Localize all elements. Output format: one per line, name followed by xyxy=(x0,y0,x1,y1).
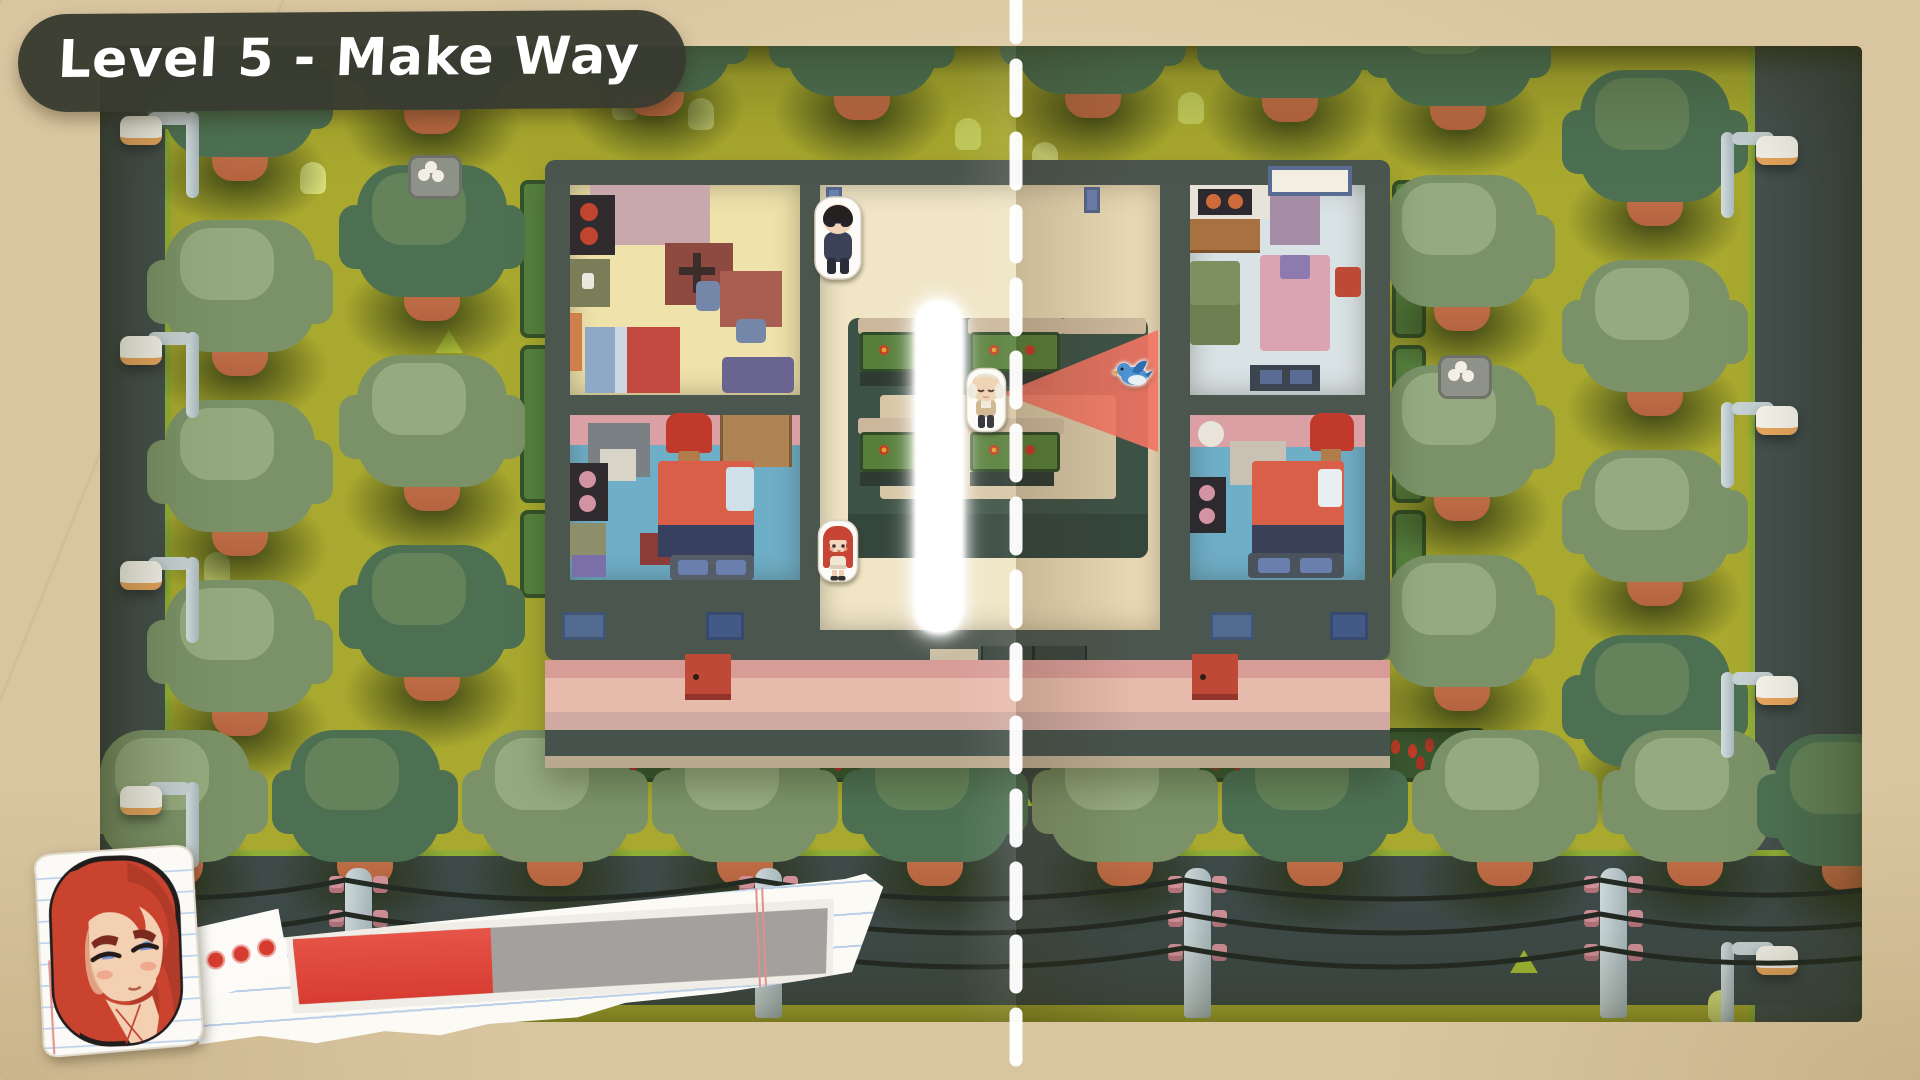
insulator xyxy=(1212,944,1227,961)
room-bottom-right xyxy=(1190,415,1365,580)
fold-highlight xyxy=(956,46,1016,1022)
npc-boy-glasses[interactable] xyxy=(812,194,864,282)
tree xyxy=(1575,450,1735,660)
window xyxy=(1210,612,1254,640)
street-lamp xyxy=(120,545,208,645)
shelf xyxy=(570,313,582,371)
street-lamp xyxy=(120,100,208,200)
tree xyxy=(1210,46,1370,176)
level-banner: Level 5 - Make Way xyxy=(18,10,686,113)
player-red-haired-girl[interactable] xyxy=(816,518,860,584)
tree xyxy=(352,545,512,755)
progress-paper xyxy=(193,873,889,1057)
bush xyxy=(1178,92,1204,124)
game-screen: Level 5 - Make Way xyxy=(0,0,1920,1080)
window xyxy=(706,612,744,640)
wardrobe xyxy=(720,415,792,467)
room-bottom-left xyxy=(570,415,800,580)
bunk-bed xyxy=(1190,261,1240,345)
insulator xyxy=(1212,910,1227,927)
lamp-shade xyxy=(1198,421,1224,447)
power-pole xyxy=(1600,868,1627,1018)
room-top-right xyxy=(1190,185,1365,395)
street-lamp xyxy=(1712,390,1800,490)
power-pole xyxy=(1184,868,1211,1018)
red-door xyxy=(685,654,731,700)
insulator xyxy=(1584,876,1599,893)
tree xyxy=(1378,46,1538,184)
insulator xyxy=(1584,910,1599,927)
stove xyxy=(570,463,608,521)
street-lamp xyxy=(1712,930,1800,1022)
room-top-left xyxy=(570,185,800,395)
fold-shadow xyxy=(1016,46,1136,1022)
street-lamp xyxy=(120,320,208,420)
tree xyxy=(782,46,942,174)
red-plant xyxy=(666,413,712,453)
couch xyxy=(1248,553,1344,578)
bird-nest xyxy=(408,155,462,199)
couch xyxy=(670,555,754,580)
bed xyxy=(1252,461,1344,555)
insulator xyxy=(1628,944,1643,961)
insulator xyxy=(329,876,344,893)
bed xyxy=(1260,255,1330,351)
sink xyxy=(570,259,610,307)
insulator xyxy=(1168,910,1183,927)
cabinets xyxy=(1190,219,1260,253)
cabinet xyxy=(572,555,606,577)
insulator xyxy=(1628,876,1643,893)
stove xyxy=(1190,477,1226,533)
progress-track xyxy=(292,908,831,1004)
bed xyxy=(658,461,754,557)
character-portrait xyxy=(24,843,207,1059)
bed xyxy=(585,327,680,393)
pip xyxy=(256,937,277,958)
tree xyxy=(1425,730,1585,940)
stove xyxy=(1198,189,1252,215)
street-lamp xyxy=(1712,660,1800,760)
tree xyxy=(352,355,512,565)
level-title: Level 5 - Make Way xyxy=(57,26,641,90)
window xyxy=(1330,612,1368,640)
insulator xyxy=(1212,876,1227,893)
tree xyxy=(1615,730,1775,940)
pip xyxy=(205,950,226,971)
progress-fill xyxy=(292,921,493,1004)
street-lamp xyxy=(1712,120,1800,220)
tree xyxy=(1575,260,1735,470)
insulator xyxy=(1628,910,1643,927)
pip xyxy=(231,943,252,964)
tree xyxy=(1575,70,1735,280)
tree xyxy=(1382,175,1542,385)
progress-frame xyxy=(285,898,837,1014)
insulator xyxy=(1168,876,1183,893)
progress-bar xyxy=(193,873,889,1057)
tv-stand xyxy=(1250,365,1320,391)
level-map xyxy=(100,46,1862,1022)
couch xyxy=(722,357,794,393)
insulator xyxy=(1168,944,1183,961)
tree xyxy=(1770,734,1862,944)
insulator xyxy=(1584,944,1599,961)
tree xyxy=(1382,365,1542,575)
stove xyxy=(570,195,615,255)
chair xyxy=(696,281,720,311)
bird-nest xyxy=(1438,355,1492,399)
red-door xyxy=(1192,654,1238,700)
tree xyxy=(352,165,512,375)
window xyxy=(1268,166,1352,196)
chair xyxy=(736,319,766,343)
red-plant xyxy=(1310,413,1354,451)
insulator xyxy=(373,876,388,893)
chair xyxy=(1335,267,1361,297)
sink xyxy=(570,523,606,559)
window xyxy=(562,612,606,640)
